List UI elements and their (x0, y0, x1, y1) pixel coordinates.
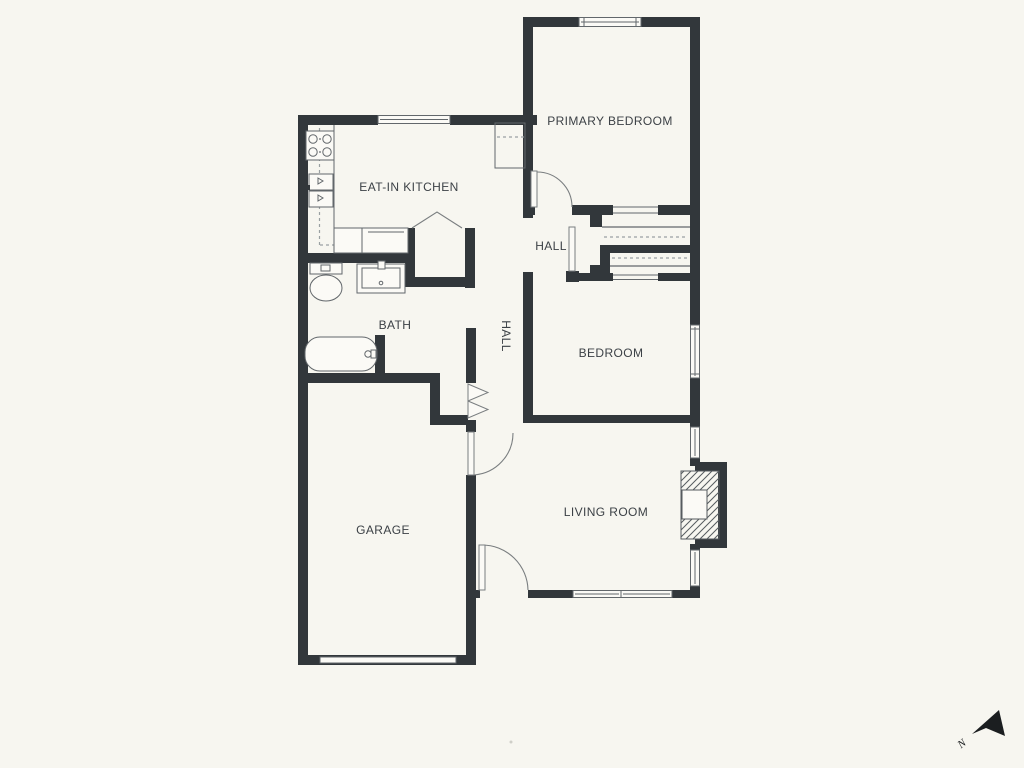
window-icon (691, 427, 700, 458)
window-icon (691, 550, 700, 586)
floor-plan: PRIMARY BEDROOM EAT-IN KITCHEN HALL HALL… (0, 0, 1024, 768)
room-label-bedroom: BEDROOM (579, 346, 644, 360)
garage-door-icon (320, 657, 456, 663)
window-icon (691, 325, 700, 378)
fireplace-icon (681, 471, 719, 539)
dishwasher-icon (334, 228, 408, 253)
window-icon (579, 18, 641, 27)
watermark-dot (510, 741, 513, 744)
floor-plan-page: PRIMARY BEDROOM EAT-IN KITCHEN HALL HALL… (0, 0, 1024, 768)
room-label-bath: BATH (379, 318, 412, 332)
room-label-garage: GARAGE (356, 523, 410, 537)
window-icon (378, 116, 450, 124)
room-label-hall-corridor: HALL (499, 320, 513, 352)
room-label-hall: HALL (535, 239, 567, 253)
toilet-icon (310, 263, 342, 301)
bathtub-icon (305, 337, 377, 371)
vanity-sink-icon (357, 261, 405, 293)
room-label-eat-in-kitchen: EAT-IN KITCHEN (359, 180, 458, 194)
stove-icon (306, 131, 334, 160)
room-label-living-room: LIVING ROOM (564, 505, 648, 519)
door-swing-icon (569, 227, 575, 271)
window-icon (573, 591, 672, 598)
room-label-primary-bedroom: PRIMARY BEDROOM (547, 114, 673, 128)
